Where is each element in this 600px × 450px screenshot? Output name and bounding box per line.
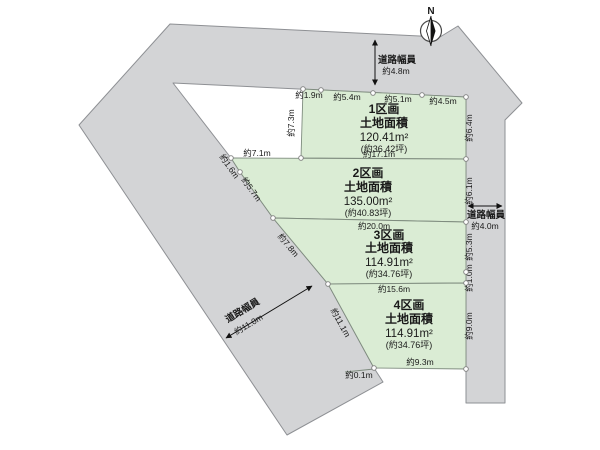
dim-p1-top-2: 約5.4m (333, 92, 360, 102)
parcel-2-area: 135.00m² (344, 196, 393, 208)
parcel-1-area-title: 土地面積 (360, 115, 409, 130)
dim-p4-right: 約9.0m (464, 312, 474, 339)
dim-p1-top-4: 約4.5m (429, 96, 456, 106)
land-plot-diagram: 1区画 土地面積 120.41m² (約36.42坪) 2区画 土地面積 135… (0, 0, 600, 450)
boundary-marker (299, 156, 304, 161)
parcel-1-area: 120.41m² (360, 132, 409, 144)
parcel-2-tsubo: (約40.83坪) (345, 207, 392, 218)
boundary-marker (326, 282, 331, 287)
road-width-top-value: 約4.8m (382, 66, 409, 76)
boundary-marker (301, 87, 306, 92)
boundary-marker (464, 281, 469, 286)
boundary-marker (238, 170, 243, 175)
boundary-marker (464, 270, 469, 275)
boundary-marker (464, 157, 469, 162)
parcel-3-tsubo: (約34.76坪) (366, 268, 413, 279)
dim-p1-right: 約6.4m (464, 114, 474, 141)
parcel-3-area: 114.91m² (365, 257, 413, 269)
boundary-marker (229, 156, 234, 161)
dim-p1-bottom: 約17.1m (363, 149, 395, 159)
dim-p2-right: 約6.1m (464, 177, 474, 204)
parcel-4-area-title: 土地面積 (385, 311, 434, 326)
parcel-4-area: 114.91m² (385, 328, 433, 340)
parcel-4-name: 4区画 (394, 298, 425, 312)
dim-p2-bottom: 約20.0m (358, 221, 390, 231)
road-width-right-value: 約4.0m (471, 221, 498, 231)
boundary-marker (464, 95, 469, 100)
boundary-marker (271, 216, 276, 221)
parcel-3-area-title: 土地面積 (365, 240, 414, 255)
boundary-marker (371, 91, 376, 96)
parcel-1-name: 1区画 (369, 102, 400, 116)
site-plan-svg: 1区画 土地面積 120.41m² (約36.42坪) 2区画 土地面積 135… (0, 0, 600, 450)
dim-notch-bottom: 約7.1m (243, 148, 270, 158)
parcel-2-area-title: 土地面積 (344, 179, 393, 194)
road-width-top-label: 道路幅員 (378, 54, 417, 66)
parcel-2-name: 2区画 (353, 166, 384, 180)
dim-p3-right-2: 約1.0m (464, 264, 474, 291)
boundary-marker (464, 367, 469, 372)
boundary-marker (319, 88, 324, 93)
parcel-4-tsubo: (約34.76坪) (386, 339, 433, 350)
dim-p3-bottom: 約15.6m (378, 284, 410, 294)
dim-p1-left: 約7.3m (286, 109, 296, 136)
boundary-marker (464, 220, 469, 225)
dim-p3-right-1: 約5.3m (464, 233, 474, 260)
road-width-right-label: 道路幅員 (467, 209, 506, 221)
dim-p4-bottom: 約9.3m (406, 357, 433, 367)
dim-p1-top-1: 約1.9m (295, 90, 322, 100)
boundary-marker (420, 93, 425, 98)
dim-p4-corner: 約0.1m (345, 370, 372, 380)
dim-p1-top-3: 約5.1m (384, 94, 411, 104)
boundary-marker (372, 366, 377, 371)
north-label: N (427, 6, 434, 17)
